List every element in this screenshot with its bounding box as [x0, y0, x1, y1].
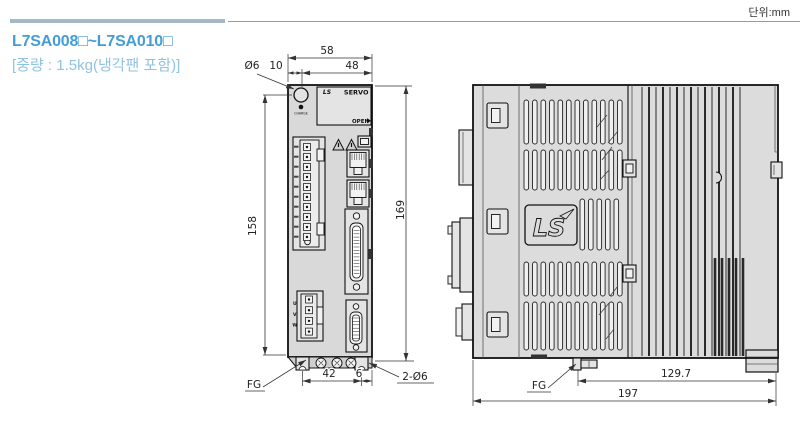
dim-body-height: 158: [247, 216, 259, 236]
terminal-pin-dot: [306, 146, 308, 148]
dim-bottom-holes: 2-Ø6: [402, 371, 428, 383]
front-view: CHARGE LS SERVO OPEN: [245, 45, 434, 391]
charge-led: [299, 105, 304, 110]
rj45-inner: [350, 183, 366, 198]
vent-slot: [558, 150, 563, 190]
io-profile-screw: [448, 276, 452, 284]
uvw-pin-dot: [308, 309, 310, 311]
mounting-tab-slot: [492, 215, 501, 229]
rj45-latch: [354, 168, 362, 175]
terminal-pin-dot: [306, 196, 308, 198]
terminal-profile: [459, 130, 473, 185]
dim-hole-dia: Ø6: [245, 60, 260, 72]
terminal-pin-dot: [306, 166, 308, 168]
vent-slot: [597, 199, 602, 250]
vent-slot: [558, 302, 563, 350]
vent-slot: [533, 262, 538, 296]
side-logo: LS: [525, 205, 577, 245]
mounting-tab-slot: [492, 318, 501, 332]
vent-slot: [584, 302, 589, 350]
vent-slot: [541, 150, 546, 190]
vent-slot: [524, 100, 529, 144]
side-nub: [369, 189, 373, 198]
usb-port-slot: [361, 139, 369, 145]
encoder-profile: [462, 304, 473, 340]
mounting-hole: [294, 88, 308, 102]
side-dimensions: 129.7 197 FG: [473, 360, 776, 406]
terminal-tab: [317, 223, 324, 235]
io-screw: [353, 213, 359, 219]
uvw-tab: [317, 307, 323, 324]
terminal-label-mark: [294, 226, 299, 228]
encoder-screw: [353, 345, 359, 351]
vent-slot: [592, 150, 597, 190]
vent-slot: [575, 262, 580, 296]
uvw-pin-dot: [308, 330, 310, 332]
terminal-label-mark: [294, 196, 299, 198]
brand-logo-large: LS: [533, 214, 566, 242]
vent-slot: [575, 150, 580, 190]
terminal-pin-dot: [306, 216, 308, 218]
dim-bottom-hole-span: 42: [322, 368, 335, 380]
bottom-hole-left: [299, 367, 306, 371]
vent-slot: [618, 150, 623, 190]
rj45-port-2: [347, 180, 373, 207]
open-label: OPEN: [352, 119, 369, 125]
uvw-label: V: [293, 312, 297, 318]
dim-fin-depth: 129.7: [661, 368, 691, 380]
terminal-pin-dot: [306, 186, 308, 188]
rear-foot: [746, 350, 778, 372]
fg-screw: [573, 358, 581, 370]
vent-slot: [584, 262, 589, 296]
vent-slot: [524, 150, 529, 190]
dim-overall-width: 58: [320, 45, 333, 57]
io-profile-front: [452, 222, 460, 288]
vent-slot: [609, 302, 614, 350]
vent-slot: [550, 302, 555, 350]
charge-label: CHARGE: [294, 112, 308, 116]
vent-slot: [533, 150, 538, 190]
side-nub: [369, 159, 373, 168]
leader-hole-dia: [257, 74, 294, 89]
vent-slot: [558, 262, 563, 296]
top-nub: [530, 84, 546, 89]
leader-bottom-holes: [369, 363, 399, 377]
fg-label-side: FG: [532, 380, 546, 392]
terminal-pin-dot: [306, 206, 308, 208]
terminal-label-mark: [294, 166, 299, 168]
encoder-connector: [346, 300, 367, 352]
vent-slot: [558, 100, 563, 144]
leader-fg-side: [548, 364, 576, 388]
vent-slot: [575, 100, 580, 144]
terminal-label-mark: [294, 206, 299, 208]
vent-slot: [580, 199, 585, 250]
vent-slot: [524, 262, 529, 296]
terminal-label-mark: [294, 186, 299, 188]
terminal-pin-dot: [306, 156, 308, 158]
vent-slot: [541, 302, 546, 350]
dim-overall-height: 169: [395, 200, 407, 220]
vent-slot: [567, 100, 572, 144]
terminal-pin-dot: [306, 226, 308, 228]
bottom-nub: [531, 355, 547, 360]
vent-slot: [533, 100, 538, 144]
vent-slot: [541, 262, 546, 296]
terminal-label-mark: [294, 236, 299, 238]
edge-clip: [771, 162, 782, 178]
vent-slot: [584, 150, 589, 190]
vent-slot: [601, 302, 606, 350]
vent-slot: [601, 150, 606, 190]
vent-slot: [601, 262, 606, 296]
dim-bottom-hole-edge: 6: [356, 368, 363, 380]
terminal-label-mark: [294, 146, 299, 148]
vent-slot: [575, 302, 580, 350]
terminal-pin-dot: [306, 236, 308, 238]
vent-slot: [592, 100, 597, 144]
mounting-tab-slot: [492, 109, 501, 123]
dim-hole-span: 48: [345, 60, 358, 72]
rj45-port-1: [347, 150, 373, 177]
servo-label: SERVO: [344, 89, 369, 97]
vent-slot: [584, 100, 589, 144]
terminal-pin-dot: [306, 176, 308, 178]
io-profile-body: [460, 218, 473, 292]
page: 단위:mm L7SA008□~L7SA010□ [중량 : 1.5kg(냉각팬 …: [0, 0, 800, 436]
brand-logo-small: LS: [323, 89, 331, 96]
vent-slot: [550, 262, 555, 296]
fg-label-front: FG: [247, 379, 261, 391]
vent-slot: [618, 100, 623, 144]
dim-hole-offset: 10: [269, 60, 282, 72]
terminal-label-mark: [294, 176, 299, 178]
vent-slot: [609, 262, 614, 296]
uvw-label: U: [293, 301, 297, 307]
vent-slot: [618, 302, 623, 350]
uvw-label: W: [292, 323, 297, 329]
encoder-profile-front: [456, 308, 462, 336]
vent-slot: [567, 302, 572, 350]
leader-fg: [263, 360, 306, 387]
vent-slot: [524, 302, 529, 350]
vent-slot: [592, 262, 597, 296]
rj45-inner: [350, 153, 366, 168]
technical-drawing: CHARGE LS SERVO OPEN: [0, 0, 800, 436]
vent-slot: [567, 262, 572, 296]
bottom-screws: [316, 358, 356, 368]
vent-slot: [567, 150, 572, 190]
cover-clip-inner: [626, 269, 633, 278]
vent-slot: [541, 100, 546, 144]
vent-slot: [592, 302, 597, 350]
io-connector: [345, 209, 372, 294]
side-nub: [368, 249, 372, 259]
terminal-label-mark: [294, 216, 299, 218]
io-screw: [353, 284, 359, 290]
side-view: LS: [448, 84, 782, 407]
vent-slot: [550, 100, 555, 144]
vent-slot: [609, 150, 614, 190]
terminal-label-mark: [294, 156, 299, 158]
vent-slot: [550, 150, 555, 190]
vent-slot: [589, 199, 594, 250]
uvw-pin-dot: [308, 320, 310, 322]
dim-overall-depth: 197: [618, 388, 638, 400]
uvw-pin-dot: [308, 298, 310, 300]
cover-clip-inner: [626, 164, 633, 173]
vent-slot: [606, 199, 611, 250]
vent-slot: [614, 199, 619, 250]
label-underlines: [245, 383, 434, 391]
terminal-tab: [317, 149, 324, 161]
vent-slot: [533, 302, 538, 350]
side-protrusions: [448, 130, 473, 340]
io-profile-screw: [448, 226, 452, 234]
rj45-latch: [354, 198, 362, 205]
vent-slot: [618, 262, 623, 296]
encoder-screw: [353, 304, 359, 310]
